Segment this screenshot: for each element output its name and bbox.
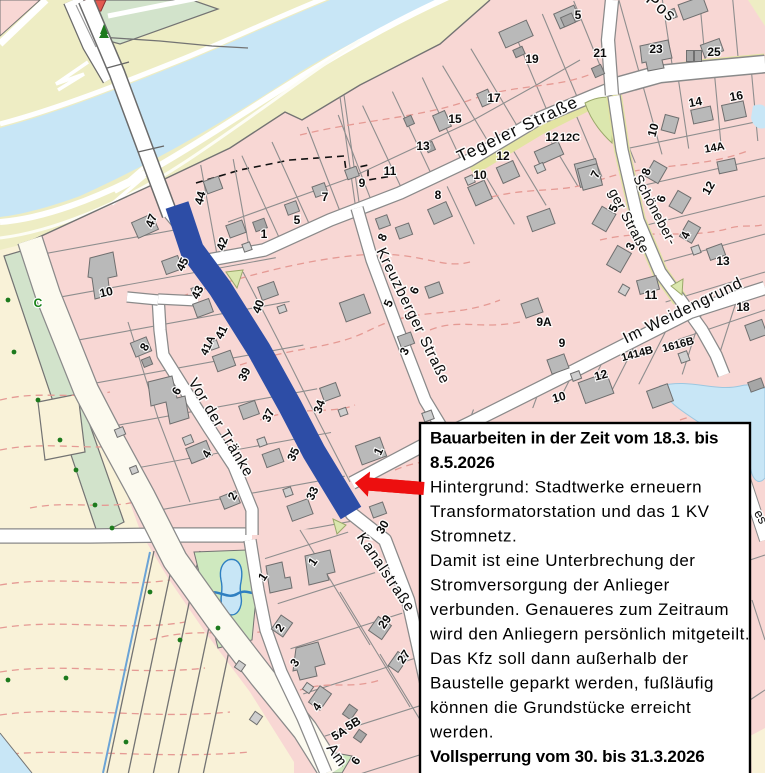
svg-text:18: 18 (736, 300, 750, 314)
svg-text:17: 17 (487, 91, 501, 105)
svg-text:10: 10 (473, 168, 487, 182)
svg-text:Stromversorgung der Anlieger: Stromversorgung der Anlieger (430, 576, 670, 595)
svg-text:9A: 9A (536, 315, 552, 329)
svg-text:23: 23 (649, 42, 663, 56)
svg-text:13: 13 (716, 254, 730, 268)
svg-text:11: 11 (645, 288, 658, 302)
svg-text:8: 8 (435, 188, 442, 202)
svg-text:Bauarbeiten in der Zeit vom 18: Bauarbeiten in der Zeit vom 18.3. bis (430, 429, 718, 448)
svg-text:9: 9 (359, 176, 366, 190)
svg-text:Das Kfz soll dann außerhalb de: Das Kfz soll dann außerhalb der (430, 649, 688, 668)
svg-text:werden.: werden. (429, 723, 494, 742)
svg-text:verbunden. Genaueres zum Zeitr: verbunden. Genaueres zum Zeitraum (430, 600, 729, 619)
svg-text:können die Grundstücke erreich: können die Grundstücke erreicht (430, 698, 691, 717)
svg-text:11: 11 (384, 164, 397, 178)
svg-text:Hintergrund: Stadtwerke erneue: Hintergrund: Stadtwerke erneuern (430, 478, 702, 497)
svg-text:C: C (34, 296, 43, 310)
svg-text:Stromnetz.: Stromnetz. (430, 527, 517, 546)
svg-text:9: 9 (559, 336, 566, 350)
svg-text:16: 16 (729, 88, 745, 104)
svg-text:1: 1 (261, 227, 268, 241)
svg-text:12: 12 (496, 149, 510, 163)
svg-text:21: 21 (593, 46, 607, 60)
svg-text:15: 15 (448, 112, 462, 126)
svg-text:wird den Anliegern persönlich: wird den Anliegern persönlich mitgeteilt… (429, 625, 750, 644)
svg-text:13: 13 (416, 139, 430, 153)
svg-text:12: 12 (545, 130, 559, 144)
svg-text:12C: 12C (560, 132, 580, 144)
svg-text:Damit ist eine Unterbrechung d: Damit ist eine Unterbrechung der (430, 551, 695, 570)
svg-text:5: 5 (575, 8, 582, 22)
svg-text:25: 25 (707, 45, 721, 59)
svg-text:19: 19 (525, 52, 539, 66)
svg-text:5: 5 (294, 213, 301, 227)
svg-text:Baustelle geparkt werden, fußl: Baustelle geparkt werden, fußläufig (430, 674, 714, 693)
svg-text:Vollsperrung vom 30. bis 31.3.: Vollsperrung vom 30. bis 31.3.2026 (430, 747, 704, 766)
svg-text:Transformatorstation und das 1: Transformatorstation und das 1 KV (430, 502, 710, 521)
svg-text:7: 7 (322, 190, 329, 204)
svg-text:8.5.2026: 8.5.2026 (430, 453, 495, 472)
svg-text:14: 14 (688, 94, 704, 110)
